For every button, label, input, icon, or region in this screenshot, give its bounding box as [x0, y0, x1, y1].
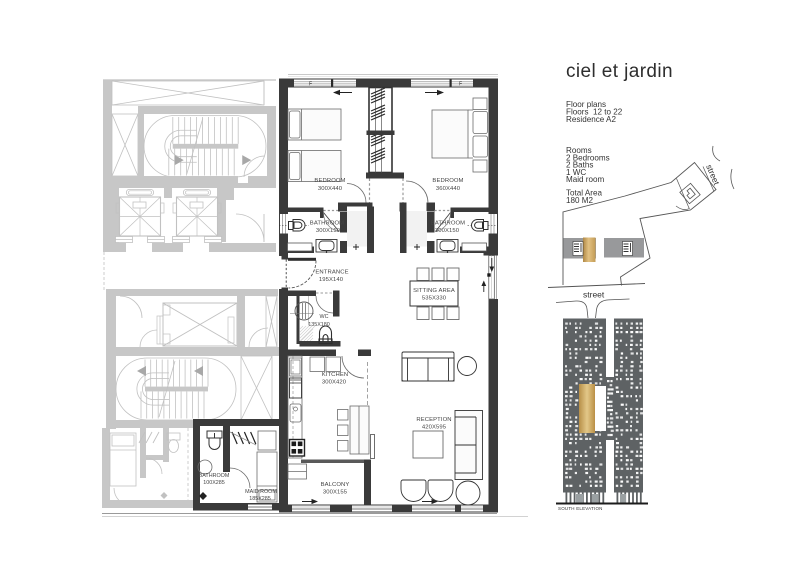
svg-text:BATHROOM: BATHROOM	[431, 221, 465, 227]
svg-text:135X180: 135X180	[308, 322, 330, 328]
svg-text:BALCONY: BALCONY	[321, 482, 350, 488]
svg-text:street: street	[583, 290, 605, 300]
svg-text:100X285: 100X285	[203, 480, 225, 486]
svg-text:MAID ROOM: MAID ROOM	[245, 489, 277, 495]
svg-text:RECEPTION: RECEPTION	[416, 417, 451, 423]
svg-text:420X595: 420X595	[422, 425, 447, 431]
svg-text:KITCHEN: KITCHEN	[322, 372, 349, 378]
svg-text:ciel et jardin: ciel et jardin	[566, 61, 673, 82]
svg-text:Maid room: Maid room	[566, 175, 604, 184]
svg-text:F: F	[459, 82, 462, 88]
svg-text:300X440: 300X440	[318, 186, 343, 192]
svg-text:300X155: 300X155	[323, 490, 348, 496]
svg-text:360X440: 360X440	[436, 186, 461, 192]
svg-text:180 M2: 180 M2	[566, 196, 593, 205]
svg-text:BEDROOM: BEDROOM	[314, 178, 345, 184]
svg-text:195X140: 195X140	[319, 277, 344, 283]
svg-text:SITTING AREA: SITTING AREA	[413, 288, 455, 294]
svg-text:WC: WC	[320, 314, 329, 320]
svg-text:F: F	[309, 82, 312, 88]
svg-text:300X150: 300X150	[435, 228, 460, 234]
svg-text:Residence A2: Residence A2	[566, 115, 616, 124]
svg-text:SOUTH ELEVATION: SOUTH ELEVATION	[558, 506, 603, 511]
svg-text:185X285: 185X285	[249, 496, 271, 502]
svg-text:300X420: 300X420	[322, 380, 347, 386]
svg-text:535X330: 535X330	[422, 296, 447, 302]
svg-text:ENTRANCE: ENTRANCE	[315, 270, 348, 276]
svg-text:BATHROOM: BATHROOM	[199, 473, 230, 479]
svg-text:BEDROOM: BEDROOM	[432, 178, 463, 184]
